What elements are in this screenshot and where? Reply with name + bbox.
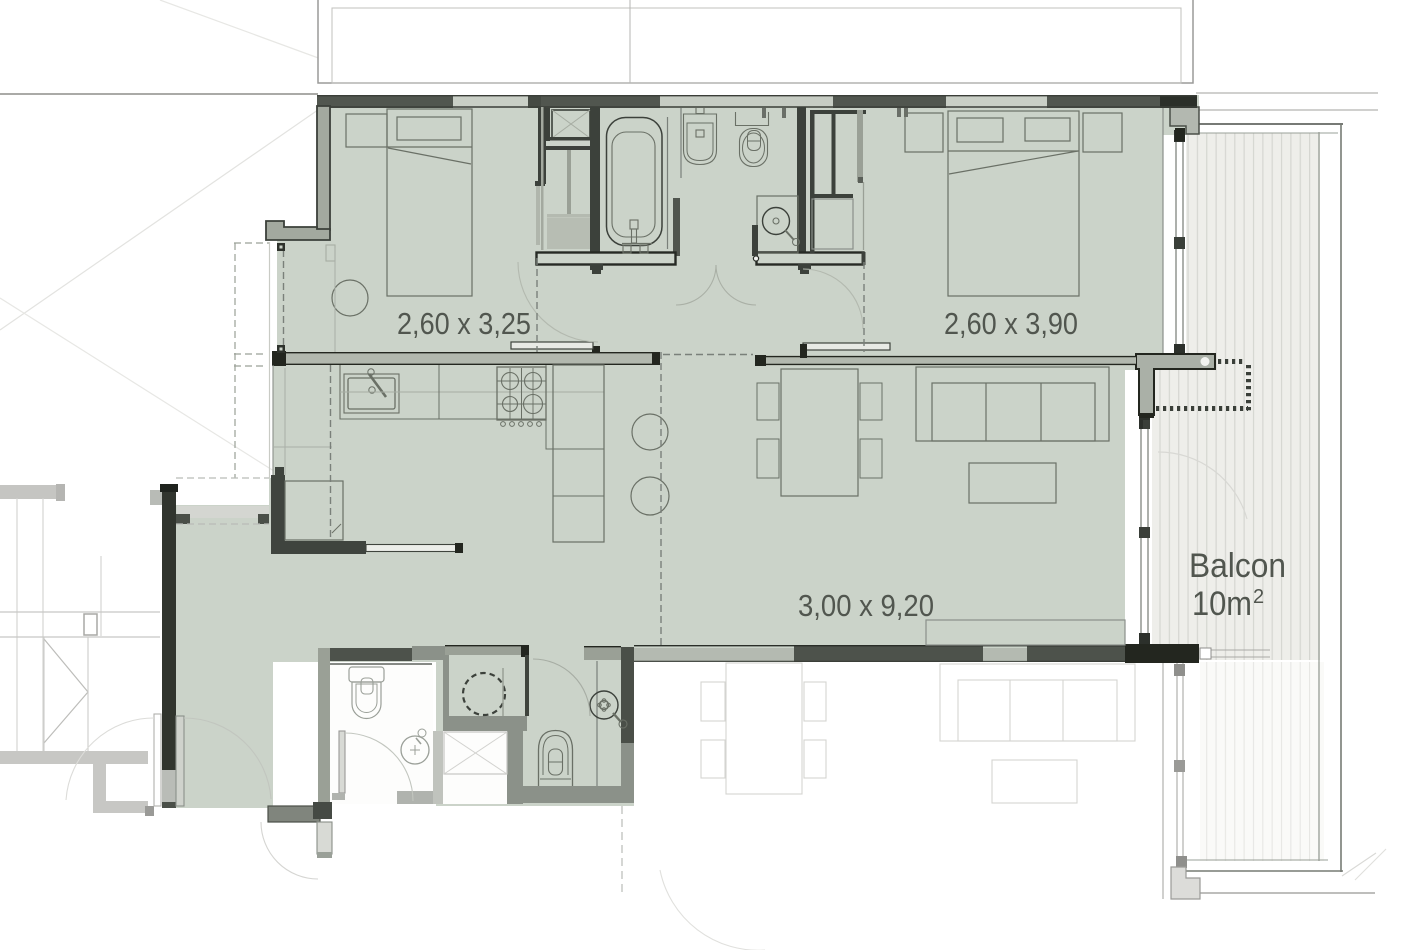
svg-text:2: 2	[1253, 586, 1264, 608]
svg-text:Balcon: Balcon	[1189, 547, 1286, 585]
svg-text:2,60 x 3,25: 2,60 x 3,25	[397, 306, 531, 341]
svg-text:10m: 10m	[1192, 585, 1252, 623]
svg-text:2,60 x 3,90: 2,60 x 3,90	[944, 306, 1078, 341]
svg-text:3,00 x 9,20: 3,00 x 9,20	[798, 588, 934, 623]
